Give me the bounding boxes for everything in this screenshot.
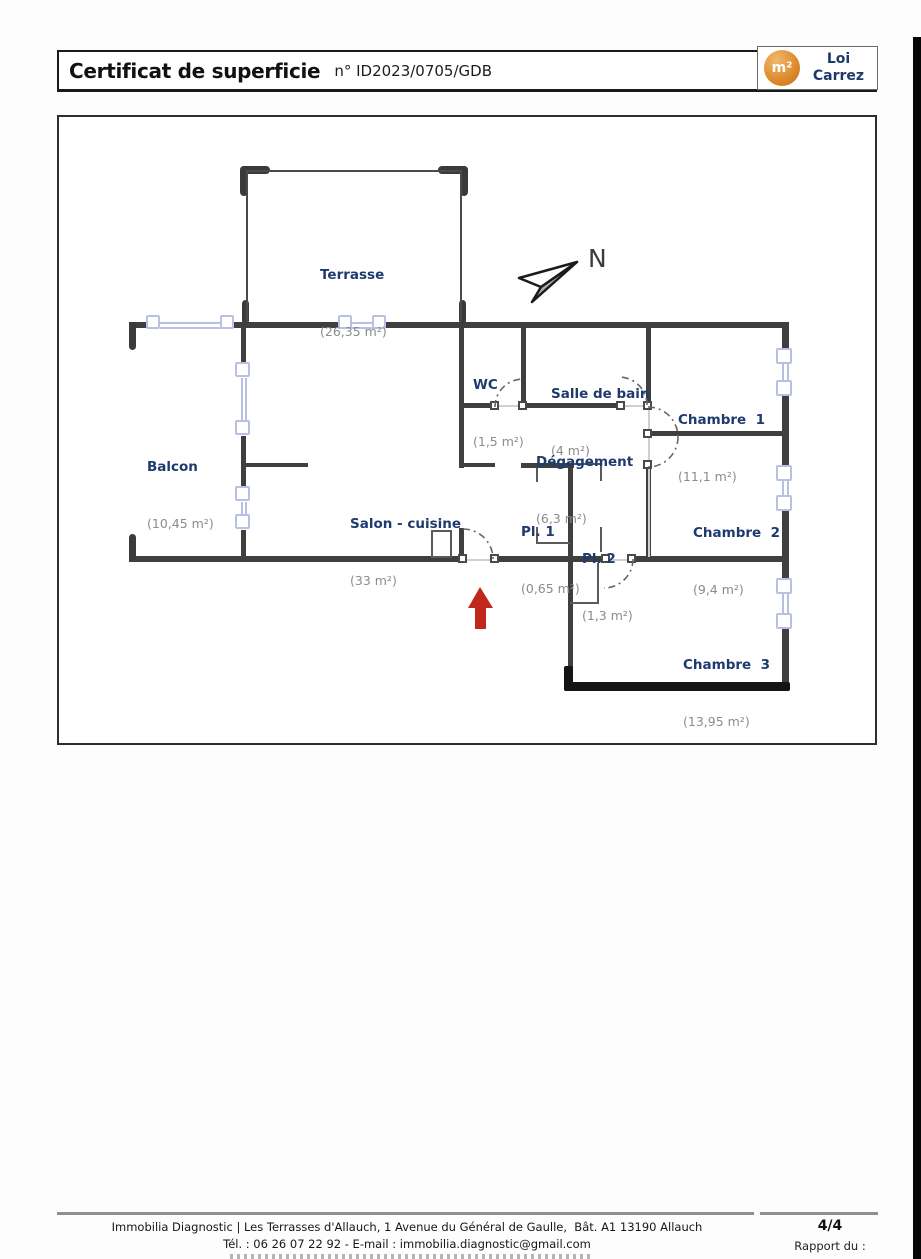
wall-post: [129, 322, 136, 350]
window-square: [146, 315, 160, 329]
loi-carrez-label: Loi Carrez: [800, 51, 877, 86]
room-name: Chambre 2: [693, 525, 780, 541]
room-name: Pl. 2: [582, 551, 633, 567]
loi-carrez-badge: m² Loi Carrez: [757, 46, 878, 90]
scan-edge-bar: [913, 37, 921, 1259]
room-area: (11,1 m²): [678, 469, 765, 484]
room-name: Dégagement: [536, 454, 633, 470]
room-area: (1,5 m²): [473, 434, 524, 449]
wall-post: [129, 534, 136, 560]
room-name: Salle de bain: [551, 386, 649, 402]
report-date-label: Rapport du :: [790, 1239, 870, 1253]
m2-icon: m²: [764, 50, 800, 86]
room-name: WC: [473, 377, 524, 393]
window: [160, 322, 222, 329]
room-label-balcon: Balcon (10,45 m²): [147, 421, 214, 569]
wall-thin: [247, 170, 462, 172]
room-area: (9,4 m²): [693, 582, 780, 597]
wall: [386, 322, 789, 328]
room-name: Chambre 1: [678, 412, 765, 428]
room-name: Pl. 1: [521, 524, 580, 540]
room-name: Terrasse: [320, 267, 387, 283]
wall: [782, 629, 789, 690]
room-label-pl2: Pl. 2 (1,3 m²): [582, 513, 633, 661]
wall-heavy: [564, 666, 573, 691]
wall-thin: [460, 170, 462, 322]
footer-address: Immobilia Diagnostic | Les Terrasses d'A…: [57, 1220, 757, 1234]
footer-divider: [57, 1212, 754, 1215]
room-area: (0,65 m²): [521, 581, 580, 596]
room-name: Balcon: [147, 459, 214, 475]
window-square: [235, 486, 250, 501]
page-number: 4/4: [790, 1218, 870, 1234]
wall: [782, 511, 789, 583]
room-area: (10,45 m²): [147, 516, 214, 531]
room-label-chambre2: Chambre 2 (9,4 m²): [693, 487, 780, 635]
window-square: [235, 514, 250, 529]
footer-divider-right: [760, 1212, 878, 1215]
room-label-terrasse: Terrasse (26,35 m²): [320, 229, 387, 377]
room-name: Chambre 3: [683, 657, 770, 673]
window-square: [776, 380, 792, 396]
footer-contact: Tél. : 06 26 07 22 92 - E-mail : immobil…: [57, 1237, 757, 1251]
room-area: (1,3 m²): [582, 608, 633, 623]
wall: [459, 403, 464, 468]
window-square: [220, 315, 234, 329]
room-area: (33 m²): [350, 573, 461, 588]
window-square: [776, 465, 792, 481]
wall: [241, 530, 246, 558]
page-title: Certificat de superficie: [69, 59, 320, 83]
room-label-chambre3: Chambre 3 (13,95 m²): [683, 619, 770, 767]
wall: [241, 463, 308, 467]
document-number: n° ID2023/0705/GDB: [334, 62, 492, 80]
certificate-page: Certificat de superficie n° ID2023/0705/…: [0, 0, 921, 1259]
door-hinge-square: [490, 554, 499, 563]
room-area: (13,95 m²): [683, 714, 770, 729]
window: [241, 378, 247, 424]
room-area: (26,35 m²): [320, 324, 387, 339]
window-square: [776, 348, 792, 364]
wall: [459, 325, 464, 407]
room-label-pl1: Pl. 1 (0,65 m²): [521, 486, 580, 634]
wall-thin: [246, 170, 248, 322]
footer-clipped-line: [230, 1254, 590, 1259]
room-label-wc: WC (1,5 m²): [473, 339, 524, 487]
room-name: Salon - cuisine: [350, 516, 461, 532]
north-label: N: [588, 244, 607, 273]
header-box: Certificat de superficie n° ID2023/0705/…: [57, 50, 877, 92]
window-square: [235, 420, 250, 435]
window-square: [235, 362, 250, 377]
room-label-salon-cuisine: Salon - cuisine (33 m²): [350, 478, 461, 626]
